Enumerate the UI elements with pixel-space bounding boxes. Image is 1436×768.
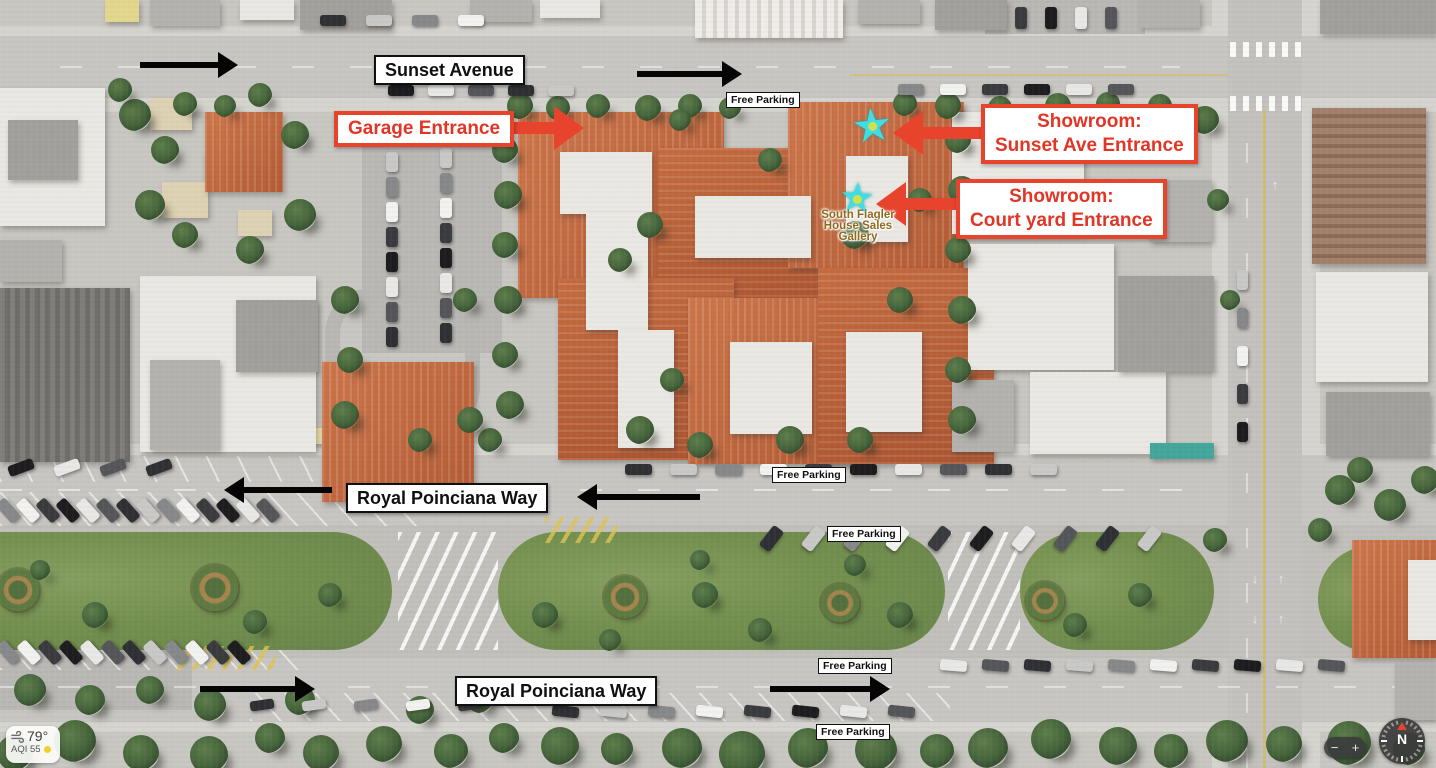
tree — [586, 94, 610, 118]
parked-car — [440, 148, 452, 168]
free-parking-label-rpw-north: Free Parking — [772, 467, 846, 483]
compass-tick — [1396, 757, 1398, 761]
parked-car — [1030, 464, 1057, 475]
tree — [1207, 189, 1229, 211]
tree — [119, 99, 151, 131]
tree — [847, 427, 873, 453]
compass-tick — [1382, 745, 1386, 747]
compass-tick — [1381, 741, 1387, 743]
road-marking — [1263, 110, 1266, 768]
road-marking — [545, 517, 617, 543]
parked-car — [386, 202, 398, 222]
building — [205, 112, 283, 192]
tree — [690, 550, 710, 570]
parked-car — [715, 464, 742, 475]
parked-car — [1192, 659, 1220, 672]
street-label-sunset-avenue: Sunset Avenue — [374, 55, 525, 85]
parked-car — [468, 85, 494, 96]
tree — [303, 735, 339, 768]
aqi-label: AQI 55 — [11, 744, 41, 755]
building — [540, 0, 600, 18]
compass-tick — [1417, 740, 1423, 742]
tree — [14, 674, 46, 706]
zoom-out-button[interactable]: − — [1324, 737, 1345, 758]
building — [1320, 0, 1436, 34]
parked-car — [898, 84, 924, 95]
tree — [541, 727, 579, 765]
road-marking — [1230, 96, 1302, 111]
tree — [496, 391, 524, 419]
road-marking — [948, 532, 1020, 650]
tree — [453, 288, 477, 312]
tree — [492, 342, 518, 368]
tree — [948, 406, 976, 434]
parked-car — [1234, 659, 1262, 672]
direction-arrow-west-rpw-2 — [577, 484, 700, 510]
parked-car — [1237, 270, 1248, 290]
building — [322, 362, 474, 502]
building — [1316, 272, 1428, 382]
building — [935, 0, 1007, 30]
tree — [601, 733, 633, 765]
tree — [1374, 489, 1406, 521]
direction-arrow-east-sunset-1 — [140, 52, 238, 78]
median-planter — [821, 584, 859, 622]
tree — [719, 731, 765, 768]
parked-car — [1237, 308, 1248, 328]
parked-car — [1024, 659, 1052, 672]
tree — [408, 428, 432, 452]
tree — [75, 685, 105, 715]
parked-car — [508, 85, 534, 96]
tree — [1266, 726, 1302, 762]
parked-car — [1237, 384, 1248, 404]
tree — [331, 286, 359, 314]
lane-arrow-marking: ↑ — [1268, 178, 1282, 194]
parked-car — [386, 302, 398, 322]
parked-car — [548, 85, 574, 96]
tree — [532, 602, 558, 628]
callout-arrow-garage-entrance — [506, 106, 584, 150]
road-marking — [1230, 42, 1302, 57]
tree — [692, 582, 718, 608]
tree — [1203, 528, 1227, 552]
building — [150, 0, 220, 26]
satellite-map[interactable]: ↑↑↓↓↑ Sunset Avenue Royal Poinciana Way … — [0, 0, 1436, 768]
tree — [1063, 613, 1087, 637]
tree — [190, 736, 228, 768]
street-label-royal-poinciana-way-east: Royal Poinciana Way — [455, 676, 657, 706]
building — [8, 120, 78, 180]
callout-garage-entrance: Garage Entrance — [334, 111, 514, 147]
tree — [662, 728, 702, 768]
parked-car — [386, 277, 398, 297]
parked-car — [982, 659, 1010, 672]
parked-car — [1066, 659, 1094, 672]
tree — [945, 237, 971, 263]
tree — [945, 357, 971, 383]
parked-car — [1276, 659, 1304, 672]
parked-car — [412, 15, 438, 26]
tree — [887, 287, 913, 313]
direction-arrow-west-rpw-1 — [224, 477, 332, 503]
road-marking — [398, 532, 498, 650]
map-lot — [985, 0, 1145, 34]
tree — [331, 401, 359, 429]
free-parking-label-median-south: Free Parking — [818, 658, 892, 674]
parked-car — [1066, 84, 1092, 95]
parked-car — [670, 464, 697, 475]
tree — [1308, 518, 1332, 542]
building — [0, 288, 130, 462]
building — [846, 332, 922, 432]
parked-car — [428, 85, 454, 96]
tree — [599, 629, 621, 651]
parked-car — [440, 198, 452, 218]
compass-tick — [1387, 753, 1391, 757]
parked-car — [895, 464, 922, 475]
tree — [172, 222, 198, 248]
tree — [920, 734, 954, 768]
tree — [243, 610, 267, 634]
compass-tick — [1402, 756, 1404, 762]
callout-line: Showroom: — [995, 110, 1184, 134]
parked-car — [366, 15, 392, 26]
tree — [478, 428, 502, 452]
building — [1140, 0, 1200, 28]
tree — [123, 735, 159, 768]
parked-car — [940, 659, 968, 672]
building — [1118, 276, 1214, 372]
callout-showroom-sunset-entrance: Showroom: Sunset Ave Entrance — [981, 104, 1198, 164]
compass-tick — [1410, 755, 1413, 759]
tree — [489, 723, 519, 753]
road-marking — [850, 74, 1228, 76]
compass-tick — [1391, 723, 1394, 727]
direction-arrow-east-rpw-1 — [200, 676, 315, 702]
tree — [173, 92, 197, 116]
compass-tick — [1406, 757, 1408, 761]
building — [560, 152, 652, 214]
tree — [494, 181, 522, 209]
compass-tick — [1386, 726, 1390, 730]
street-label-royal-poinciana-way-west: Royal Poinciana Way — [346, 483, 548, 513]
poi-label-sales-gallery[interactable]: South Flagler House Sales Gallery — [793, 210, 923, 243]
building — [1408, 560, 1436, 640]
compass-tick — [1391, 755, 1394, 759]
callout-line: Sunset Ave Entrance — [995, 134, 1184, 158]
parked-car — [386, 252, 398, 272]
parked-car — [386, 327, 398, 347]
temperature-label: 79° — [27, 729, 48, 744]
compass-tick — [1384, 749, 1388, 752]
tree — [82, 602, 108, 628]
tree — [434, 734, 468, 768]
compass-tick — [1405, 720, 1407, 724]
direction-arrow-east-rpw-2 — [770, 676, 890, 702]
tree — [214, 95, 236, 117]
free-parking-label-sunset: Free Parking — [726, 92, 800, 108]
parked-car — [458, 15, 484, 26]
tree — [758, 148, 782, 172]
building — [240, 0, 294, 20]
tree — [635, 95, 661, 121]
compass-tick — [1410, 722, 1413, 726]
tree — [968, 728, 1008, 768]
building — [858, 0, 920, 24]
tree — [1154, 734, 1188, 768]
tree — [318, 583, 342, 607]
free-parking-label-rpw-south: Free Parking — [816, 724, 890, 740]
zoom-controls: − + — [1324, 737, 1366, 758]
tree — [337, 347, 363, 373]
aqi-dot — [44, 746, 51, 753]
median-planter — [192, 565, 238, 611]
tree — [776, 426, 804, 454]
parked-car — [1318, 659, 1346, 672]
parked-car — [440, 248, 452, 268]
parked-car — [386, 177, 398, 197]
compass-tick — [1413, 725, 1417, 729]
tree — [687, 432, 713, 458]
building — [968, 244, 1114, 370]
parked-car — [1237, 422, 1248, 442]
building — [236, 300, 318, 372]
parked-car — [1108, 659, 1136, 672]
tree — [281, 121, 309, 149]
parked-car — [1150, 659, 1178, 672]
building — [105, 0, 139, 22]
tree — [248, 83, 272, 107]
building — [1395, 662, 1436, 720]
parked-car — [940, 84, 966, 95]
parked-car — [1075, 7, 1087, 29]
tree — [284, 199, 316, 231]
tree — [1411, 466, 1436, 494]
parked-car — [1024, 84, 1050, 95]
tree — [1347, 457, 1373, 483]
building — [1312, 108, 1426, 264]
tree — [255, 723, 285, 753]
building — [162, 182, 208, 218]
tree — [669, 109, 691, 131]
parked-car — [985, 464, 1012, 475]
tree — [748, 618, 772, 642]
parked-car — [386, 152, 398, 172]
tree — [366, 726, 402, 762]
tree — [492, 232, 518, 258]
tree — [54, 720, 96, 762]
building — [238, 210, 272, 236]
tree — [30, 560, 50, 580]
tree — [844, 554, 866, 576]
tree — [626, 416, 654, 444]
building — [1326, 392, 1430, 456]
tree — [1031, 719, 1071, 759]
parked-car — [320, 15, 346, 26]
tree — [136, 676, 164, 704]
parked-car — [1015, 7, 1027, 29]
callout-showroom-courtyard-entrance: Showroom: Court yard Entrance — [956, 179, 1167, 239]
building — [1150, 443, 1214, 459]
median-planter — [1026, 582, 1064, 620]
tree — [457, 407, 483, 433]
callout-line: Showroom: — [970, 185, 1153, 209]
lane-arrow-marking: ↑ — [1274, 572, 1288, 588]
weather-widget[interactable]: 79° AQI 55 — [6, 726, 60, 763]
building — [730, 342, 812, 434]
callout-line: Court yard Entrance — [970, 209, 1153, 233]
tree — [108, 78, 132, 102]
tree — [608, 248, 632, 272]
tree — [637, 212, 663, 238]
parked-car — [1237, 346, 1248, 366]
lane-arrow-marking: ↓ — [1248, 612, 1262, 628]
tree — [151, 136, 179, 164]
lane-arrow-marking: ↓ — [1248, 572, 1262, 588]
building — [0, 240, 62, 282]
parked-car — [440, 173, 452, 193]
tree — [236, 236, 264, 264]
parked-car — [440, 298, 452, 318]
tree — [494, 286, 522, 314]
parked-car — [982, 84, 1008, 95]
median-planter — [604, 576, 646, 618]
lane-arrow-marking: ↑ — [1274, 612, 1288, 628]
direction-arrow-east-sunset-2 — [637, 61, 742, 87]
median-island — [498, 532, 945, 650]
parked-car — [625, 464, 652, 475]
poi-line: Gallery — [793, 232, 923, 243]
compass[interactable]: N — [1379, 718, 1425, 764]
parked-car — [1108, 84, 1134, 95]
parked-car — [388, 85, 414, 96]
parked-car — [850, 464, 877, 475]
zoom-in-button[interactable]: + — [1345, 737, 1366, 758]
wind-icon — [11, 731, 24, 743]
building — [1030, 372, 1166, 454]
tree — [887, 602, 913, 628]
tree — [1099, 727, 1137, 765]
tree — [1128, 583, 1152, 607]
tree — [135, 190, 165, 220]
tree — [1220, 290, 1240, 310]
callout-arrow-showroom-sunset — [893, 111, 981, 155]
parked-car — [386, 227, 398, 247]
tree — [1206, 720, 1248, 762]
parked-car — [940, 464, 967, 475]
parked-car — [440, 323, 452, 343]
compass-tick — [1416, 749, 1420, 752]
building — [695, 0, 843, 38]
parked-car — [1045, 7, 1057, 29]
compass-tick — [1414, 752, 1418, 756]
free-parking-label-median-north: Free Parking — [827, 526, 901, 542]
tree — [948, 296, 976, 324]
building — [150, 360, 220, 450]
tree — [660, 368, 684, 392]
parked-car — [440, 223, 452, 243]
parked-car — [440, 273, 452, 293]
map-satellite-decor: ↑↑↓↓↑ — [0, 0, 1436, 768]
parked-car — [1105, 7, 1117, 29]
